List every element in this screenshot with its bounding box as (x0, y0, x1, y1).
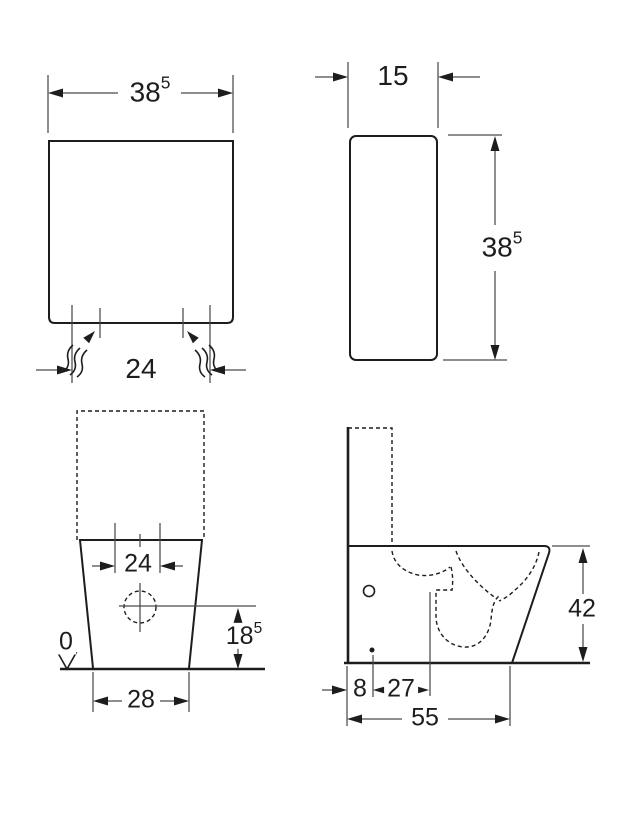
dim-cistern-height-label: 385 (479, 232, 526, 261)
dim-fixing-spacing-label: 24 (121, 552, 155, 577)
dim-total-depth-label: 55 (408, 706, 442, 731)
dim-cistern-depth-label: 15 (374, 62, 411, 90)
dim-supply-spacing-label: 24 (122, 355, 159, 383)
dim-outlet-height-label: 185 (223, 623, 265, 649)
dim-rim-height-label: 42 (565, 597, 599, 622)
dim-rear-offset-label: 8 (350, 677, 370, 702)
dim-outlet-offset-label: 27 (384, 677, 418, 702)
wc-front-view (58, 411, 265, 712)
floor-datum-label: 0 (56, 630, 76, 655)
dimension-drawing (0, 0, 638, 838)
dim-base-width-label: 28 (124, 688, 158, 713)
technical-drawing-page: 385 24 15 385 24 185 0 28 42 8 27 55 (0, 0, 638, 838)
dim-cistern-width-label: 385 (127, 77, 174, 106)
cistern-front-view (36, 75, 246, 383)
cistern-side-view (315, 62, 507, 360)
